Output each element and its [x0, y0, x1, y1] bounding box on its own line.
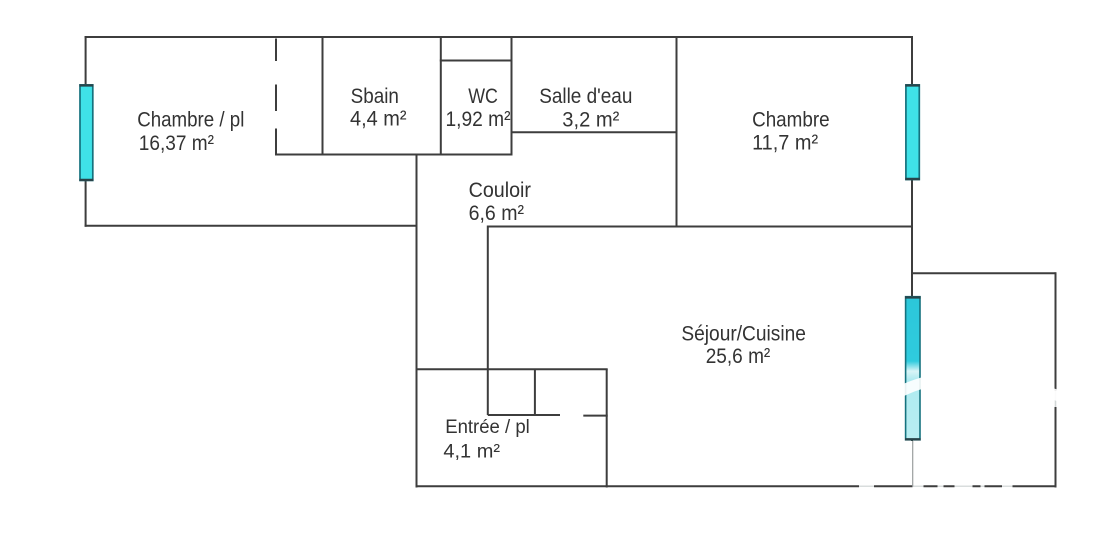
svg-text:25,6 m²: 25,6 m²	[706, 345, 771, 368]
svg-text:Chambre: Chambre	[752, 109, 830, 132]
svg-text:Chambre / pl: Chambre / pl	[137, 108, 244, 131]
svg-text:3,2 m²: 3,2 m²	[562, 108, 619, 131]
svg-text:6,6 m²: 6,6 m²	[469, 202, 524, 225]
svg-text:16,37 m²: 16,37 m²	[139, 132, 214, 155]
svg-text:Salle d'eau: Salle d'eau	[539, 85, 632, 108]
svg-text:Entrée / pl: Entrée / pl	[445, 416, 530, 438]
svg-text:4,4 m²: 4,4 m²	[350, 107, 407, 130]
svg-text:1,92 m²: 1,92 m²	[446, 108, 511, 131]
svg-text:Sbain: Sbain	[351, 85, 399, 108]
svg-text:11,7 m²: 11,7 m²	[752, 131, 818, 154]
svg-text:4,1 m²: 4,1 m²	[443, 441, 500, 463]
svg-text:Couloir: Couloir	[469, 179, 531, 202]
svg-text:WC: WC	[468, 85, 498, 108]
svg-text:Séjour/Cuisine: Séjour/Cuisine	[681, 323, 806, 346]
